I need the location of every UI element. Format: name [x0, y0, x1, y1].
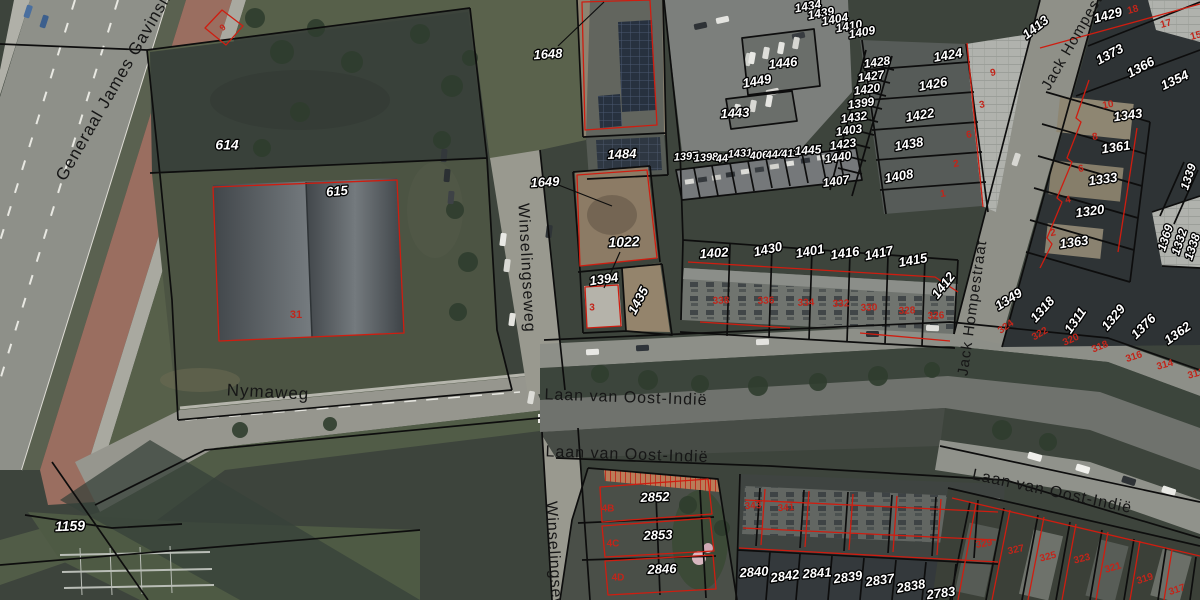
- house-number-label: 4B: [602, 504, 615, 515]
- parcel-number-label: 1648: [533, 46, 563, 63]
- warehouse-building: [213, 178, 404, 341]
- parcel-number-label: 1445: [794, 142, 822, 158]
- house-number-label: 15: [1189, 29, 1200, 43]
- house-number-label: 4D: [612, 573, 625, 584]
- parcel-number-label: 2841: [801, 564, 832, 581]
- parcel-number-label: 1446: [768, 54, 799, 72]
- parcel-number-label: 1443: [720, 105, 750, 122]
- house-number-label: 338: [712, 295, 729, 307]
- parcel-number-label: 1159: [55, 517, 86, 534]
- parcel-number-label: 44: [714, 152, 728, 165]
- parcel-number-label: 2852: [639, 489, 670, 505]
- house-number-label: 326: [927, 310, 944, 322]
- house-number-label: 328: [898, 305, 915, 317]
- parcel-number-label: 615: [325, 182, 349, 199]
- house-number-label: 4C: [607, 539, 620, 550]
- house-number-label: 334: [797, 297, 814, 309]
- parcel-number-label: 2840: [738, 563, 770, 580]
- parcel-number-label: 2846: [646, 561, 677, 577]
- house-number-label: 31: [290, 309, 302, 321]
- house-number-label: 341: [777, 502, 795, 514]
- house-number-label: 343: [744, 500, 762, 512]
- house-number-label: 336: [757, 295, 774, 307]
- parcel-number-label: 1649: [530, 174, 560, 191]
- house-number-label: 332: [832, 298, 849, 310]
- parcel-number-label: 2853: [642, 527, 673, 543]
- house-number-label: 330: [860, 302, 877, 314]
- cadastral-map: Generaal James GavinsingelWinselingseweg…: [0, 0, 1200, 600]
- map-viewport[interactable]: Generaal James GavinsingelWinselingseweg…: [0, 0, 1200, 600]
- house-number-label: 3: [589, 303, 595, 314]
- parcel-number-label: 614: [215, 137, 239, 153]
- parcel-number-label: 1484: [607, 146, 637, 162]
- parcel-number-label: 1402: [699, 244, 730, 261]
- parcel-number-label: 1022: [608, 233, 640, 250]
